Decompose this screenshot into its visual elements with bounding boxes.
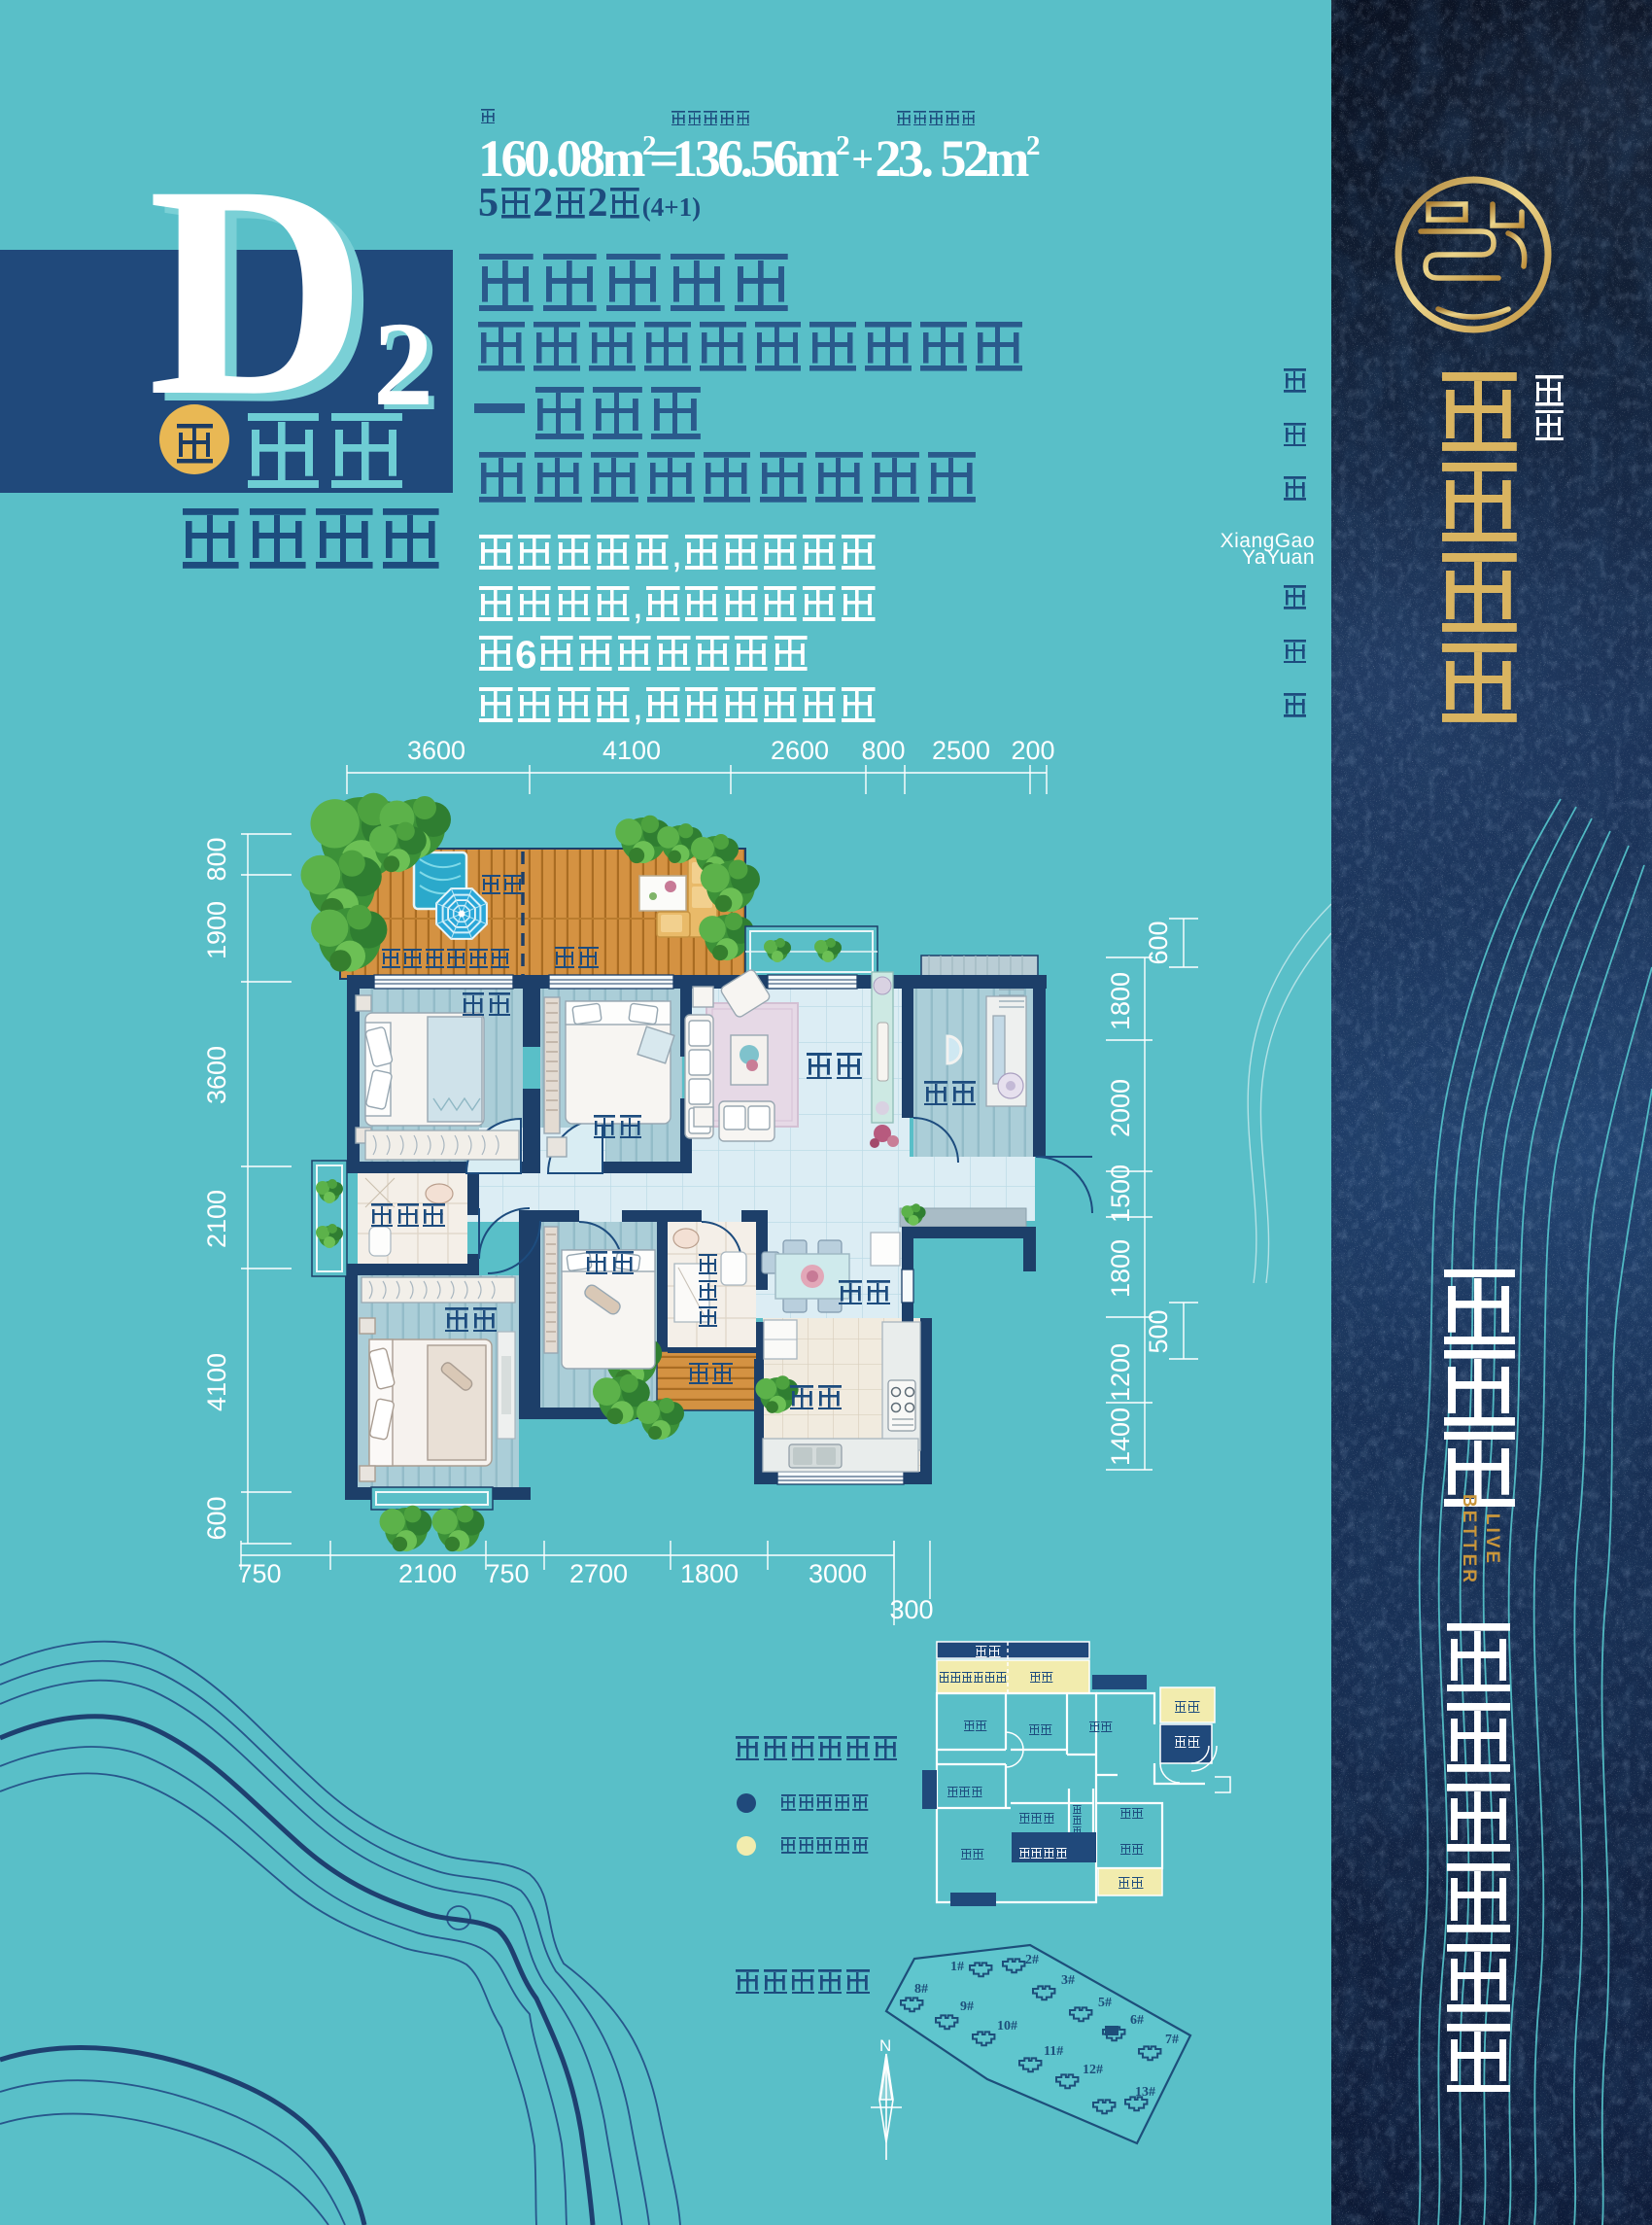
svg-text:1500: 1500 — [1106, 1165, 1135, 1223]
svg-text:4100: 4100 — [202, 1353, 231, 1411]
svg-text:1#: 1# — [950, 1960, 964, 1974]
svg-text:6#: 6# — [1130, 2013, 1144, 2028]
svg-text:12#: 12# — [1083, 2063, 1103, 2077]
svg-text:500: 500 — [1144, 1309, 1173, 1353]
svg-text:800: 800 — [202, 837, 231, 881]
svg-text:3600: 3600 — [202, 1046, 231, 1104]
svg-text:2000: 2000 — [1106, 1079, 1135, 1137]
svg-text:1400: 1400 — [1106, 1408, 1135, 1466]
svg-text:7#: 7# — [1165, 2033, 1179, 2047]
svg-text:2100: 2100 — [202, 1190, 231, 1248]
svg-text:3000: 3000 — [809, 1559, 867, 1588]
svg-text:N: N — [879, 2036, 891, 2055]
svg-text:11#: 11# — [1044, 2044, 1063, 2059]
svg-text:2#: 2# — [1025, 1953, 1039, 1967]
svg-text:1200: 1200 — [1106, 1343, 1135, 1402]
svg-text:600: 600 — [202, 1496, 231, 1540]
svg-text:4100: 4100 — [602, 736, 661, 765]
svg-text:5#: 5# — [1098, 1996, 1112, 2010]
svg-text:13#: 13# — [1135, 2085, 1155, 2100]
svg-text:800: 800 — [861, 736, 905, 765]
svg-text:10#: 10# — [997, 2019, 1017, 2034]
svg-text:200: 200 — [1011, 736, 1054, 765]
svg-text:3#: 3# — [1061, 1973, 1075, 1988]
svg-text:1800: 1800 — [1106, 1239, 1135, 1298]
svg-text:2600: 2600 — [771, 736, 829, 765]
svg-text:300: 300 — [889, 1595, 933, 1624]
svg-text:1800: 1800 — [1106, 972, 1135, 1030]
svg-text:600: 600 — [1144, 921, 1173, 964]
svg-text:2500: 2500 — [932, 736, 990, 765]
svg-text:8#: 8# — [914, 1982, 928, 1997]
svg-text:1900: 1900 — [202, 901, 231, 959]
svg-text:3600: 3600 — [407, 736, 465, 765]
svg-text:9#: 9# — [960, 1999, 974, 2014]
